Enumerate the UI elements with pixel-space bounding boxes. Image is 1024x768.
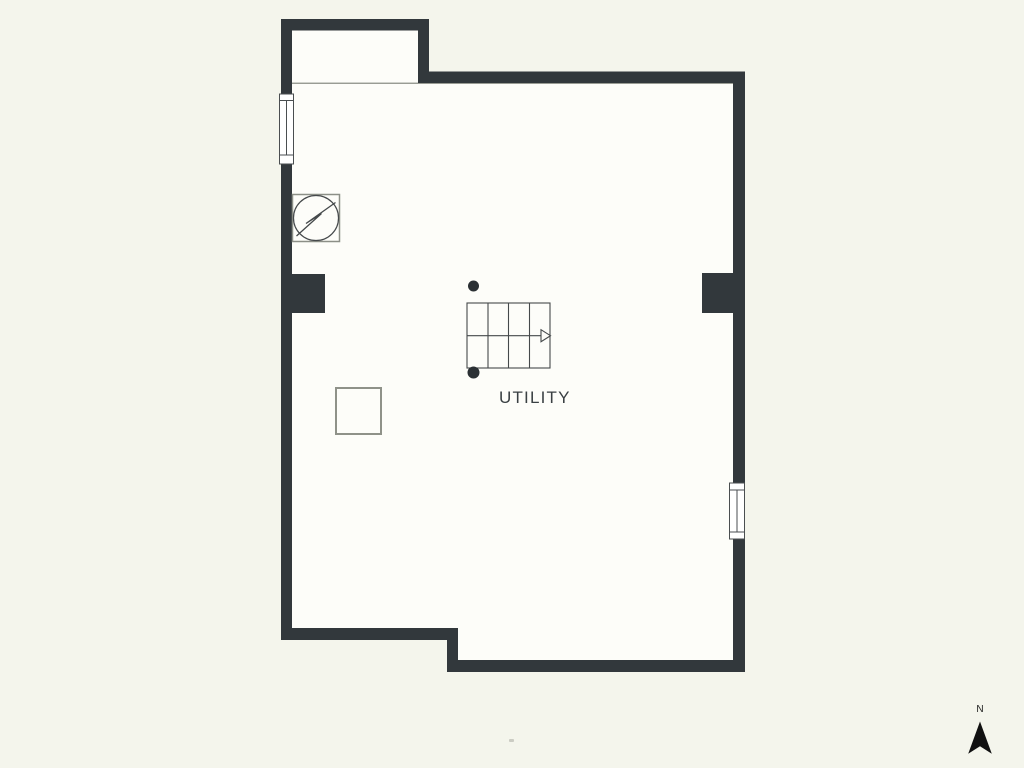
wall-right-upper	[733, 72, 745, 484]
faint-mark	[509, 739, 514, 742]
pilaster-left	[292, 274, 325, 313]
square-fixture-icon	[336, 388, 381, 434]
window-left-icon	[280, 94, 294, 164]
wall-top-bumpout	[281, 19, 429, 31]
compass-north-label: N	[968, 704, 992, 715]
wall-bottom-left	[281, 628, 458, 640]
room-label-utility: UTILITY	[499, 388, 571, 408]
wall-left-lower	[281, 164, 292, 640]
post-dot-bottom	[468, 367, 480, 379]
floor-plan-page: UTILITY N	[0, 0, 1024, 768]
fan-symbol-icon	[293, 195, 340, 242]
staircase-icon	[467, 303, 551, 368]
wall-right-lower	[733, 539, 745, 672]
pilaster-right	[702, 273, 733, 313]
wall-bottom-right	[447, 660, 745, 672]
window-right-icon	[730, 483, 745, 539]
post-dot-top	[468, 281, 479, 292]
north-arrow-icon	[968, 722, 992, 754]
wall-top-main	[418, 72, 745, 84]
floor-plan-drawing	[0, 0, 1024, 768]
wall-left-upper	[281, 19, 292, 94]
